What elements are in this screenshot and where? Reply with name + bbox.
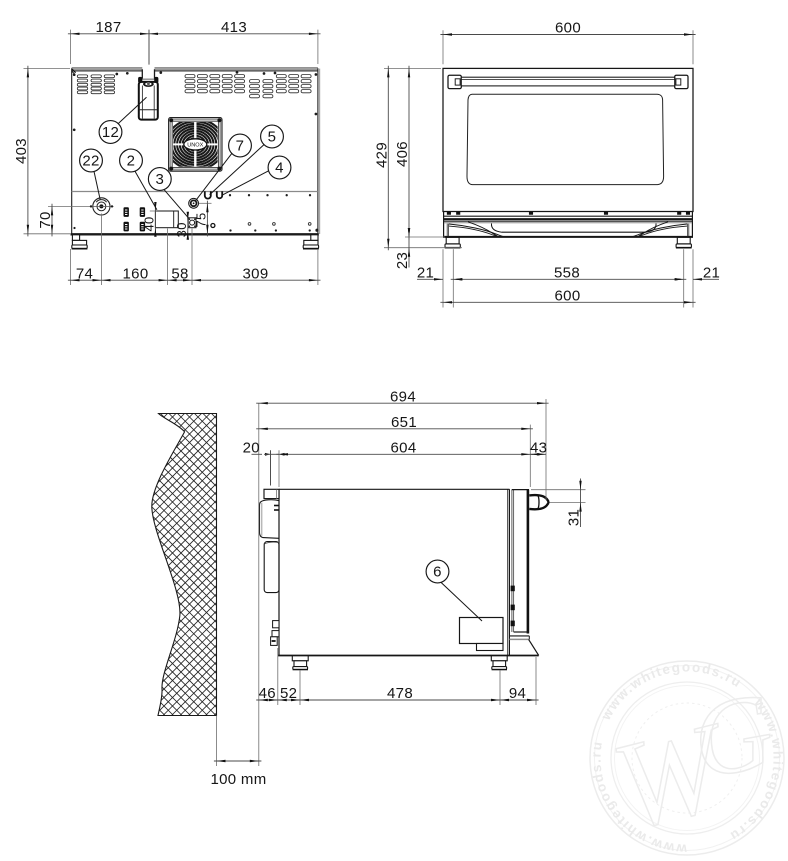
svg-text:403: 403 <box>13 138 30 164</box>
svg-text:100 mm: 100 mm <box>211 771 267 788</box>
svg-text:21: 21 <box>417 265 434 282</box>
svg-text:413: 413 <box>221 19 247 36</box>
svg-text:558: 558 <box>554 265 580 282</box>
svg-text:22: 22 <box>82 153 99 170</box>
svg-text:46: 46 <box>259 685 276 702</box>
svg-text:604: 604 <box>391 440 417 457</box>
svg-text:70: 70 <box>37 211 54 228</box>
svg-text:75: 75 <box>194 212 209 227</box>
svg-text:20: 20 <box>243 440 260 457</box>
svg-text:478: 478 <box>387 685 413 702</box>
svg-text:2: 2 <box>127 153 136 170</box>
svg-text:21: 21 <box>703 265 720 282</box>
svg-text:58: 58 <box>171 265 188 282</box>
svg-text:52: 52 <box>280 685 297 702</box>
svg-text:160: 160 <box>123 265 149 282</box>
svg-text:31: 31 <box>566 509 583 526</box>
svg-text:7: 7 <box>236 138 245 155</box>
svg-text:6: 6 <box>433 564 442 581</box>
svg-text:651: 651 <box>391 414 417 431</box>
svg-text:23: 23 <box>394 252 411 269</box>
svg-text:43: 43 <box>530 440 547 457</box>
svg-text:3: 3 <box>155 171 164 188</box>
svg-text:40: 40 <box>142 216 157 231</box>
svg-text:406: 406 <box>394 141 411 167</box>
svg-text:309: 309 <box>243 265 269 282</box>
svg-text:12: 12 <box>102 124 119 141</box>
svg-text:429: 429 <box>374 142 391 168</box>
svg-text:187: 187 <box>96 19 122 36</box>
svg-text:600: 600 <box>555 20 581 37</box>
svg-text:UNOX: UNOX <box>187 142 203 148</box>
svg-text:30: 30 <box>174 222 189 237</box>
svg-text:4: 4 <box>275 160 284 177</box>
svg-text:5: 5 <box>268 129 277 146</box>
svg-text:600: 600 <box>555 288 581 305</box>
svg-text:694: 694 <box>390 388 416 405</box>
svg-text:74: 74 <box>76 265 93 282</box>
svg-text:94: 94 <box>509 685 526 702</box>
